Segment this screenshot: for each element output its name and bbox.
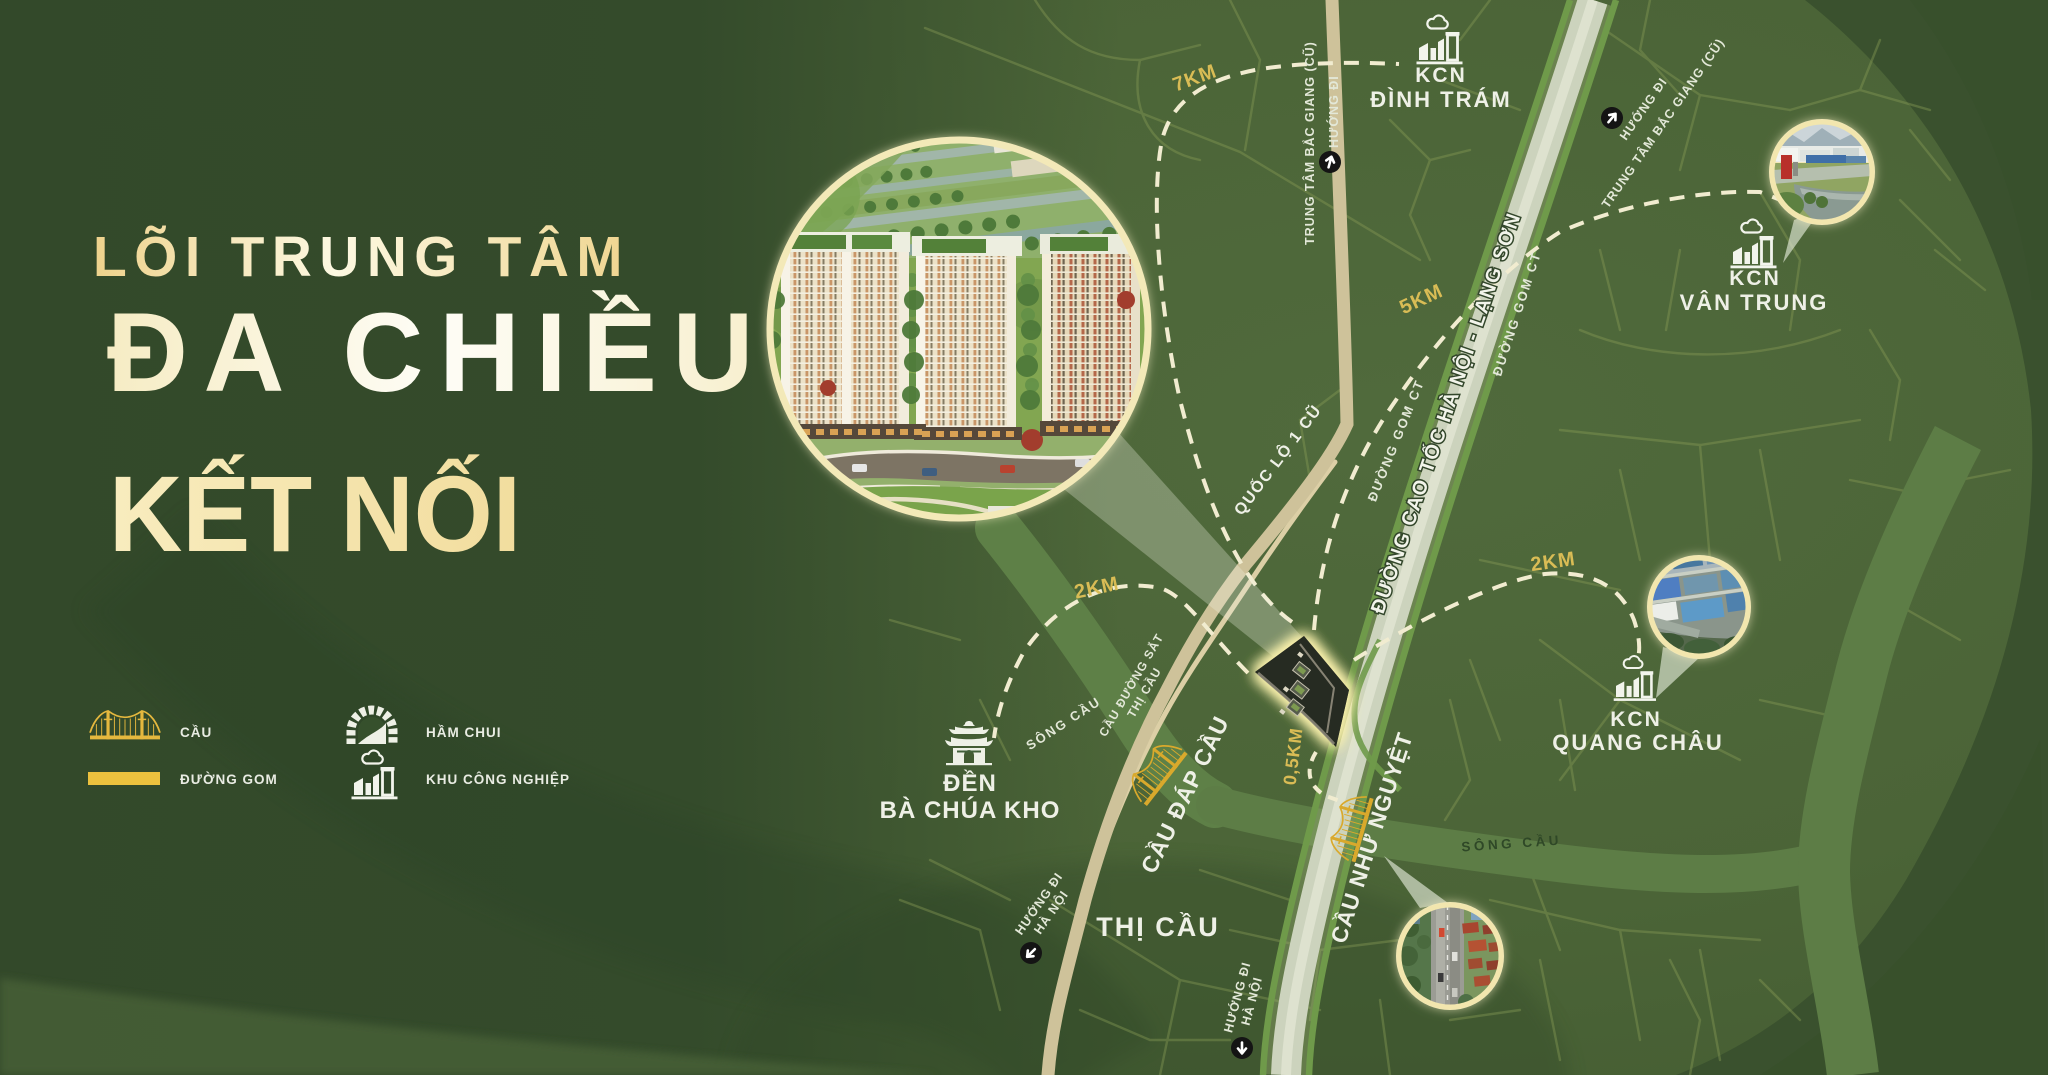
svg-text:LÕI TRUNG TÂM: LÕI TRUNG TÂM xyxy=(93,224,630,289)
svg-text:ĐA CHIỀU: ĐA CHIỀU xyxy=(107,290,769,415)
svg-text:KCN: KCN xyxy=(1415,64,1467,87)
svg-text:CẦU: CẦU xyxy=(180,725,212,740)
svg-text:KCN: KCN xyxy=(1729,267,1781,290)
svg-text:ĐÌNH TRÁM: ĐÌNH TRÁM xyxy=(1370,87,1511,112)
svg-text:HẦM CHUI: HẦM CHUI xyxy=(426,725,502,740)
svg-text:HƯỚNG ĐI: HƯỚNG ĐI xyxy=(1326,75,1341,148)
svg-text:ĐƯỜNG GOM: ĐƯỜNG GOM xyxy=(180,772,278,787)
svg-text:THỊ CẦU: THỊ CẦU xyxy=(1096,911,1220,942)
svg-text:KHU CÔNG NGHIỆP: KHU CÔNG NGHIỆP xyxy=(426,772,570,787)
svg-text:KẾT NỐI: KẾT NỐI xyxy=(109,453,521,574)
svg-text:VÂN TRUNG: VÂN TRUNG xyxy=(1680,290,1829,315)
svg-text:QUANG CHÂU: QUANG CHÂU xyxy=(1552,730,1724,755)
svg-text:ĐỀN: ĐỀN xyxy=(943,769,997,797)
svg-text:KCN: KCN xyxy=(1610,708,1662,731)
svg-text:TRUNG TÂM BẮC GIANG (CŨ): TRUNG TÂM BẮC GIANG (CŨ) xyxy=(1302,41,1317,245)
svg-text:BÀ CHÚA KHO: BÀ CHÚA KHO xyxy=(880,796,1061,824)
